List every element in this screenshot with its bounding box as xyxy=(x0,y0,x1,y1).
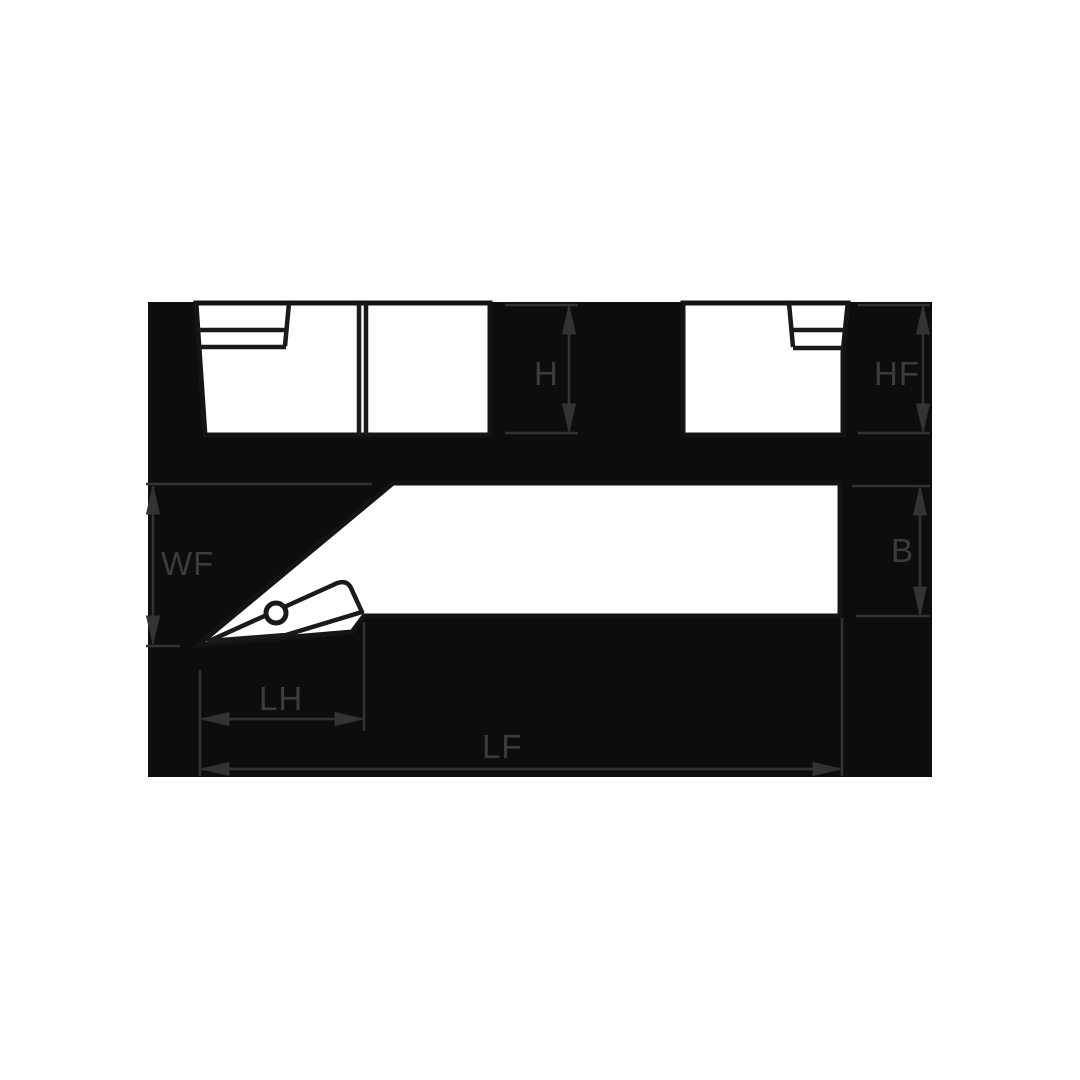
dim-label-h: H xyxy=(534,355,559,392)
top-view-shank-body xyxy=(683,303,848,435)
tool-holder-drawing: H HF WF B xyxy=(0,0,1080,1080)
dim-label-hf: HF xyxy=(874,355,920,392)
dim-label-wf: WF xyxy=(161,545,214,582)
dim-label-b: B xyxy=(891,532,914,569)
dim-label-lh: LH xyxy=(259,680,303,717)
top-view-head-body xyxy=(196,303,490,435)
insert-screw-hole xyxy=(266,603,286,623)
top-view-shank-end xyxy=(683,303,848,435)
top-view-head xyxy=(196,303,490,435)
dim-label-lf: LF xyxy=(482,728,523,765)
technical-drawing-stage: H HF WF B xyxy=(0,0,1080,1080)
